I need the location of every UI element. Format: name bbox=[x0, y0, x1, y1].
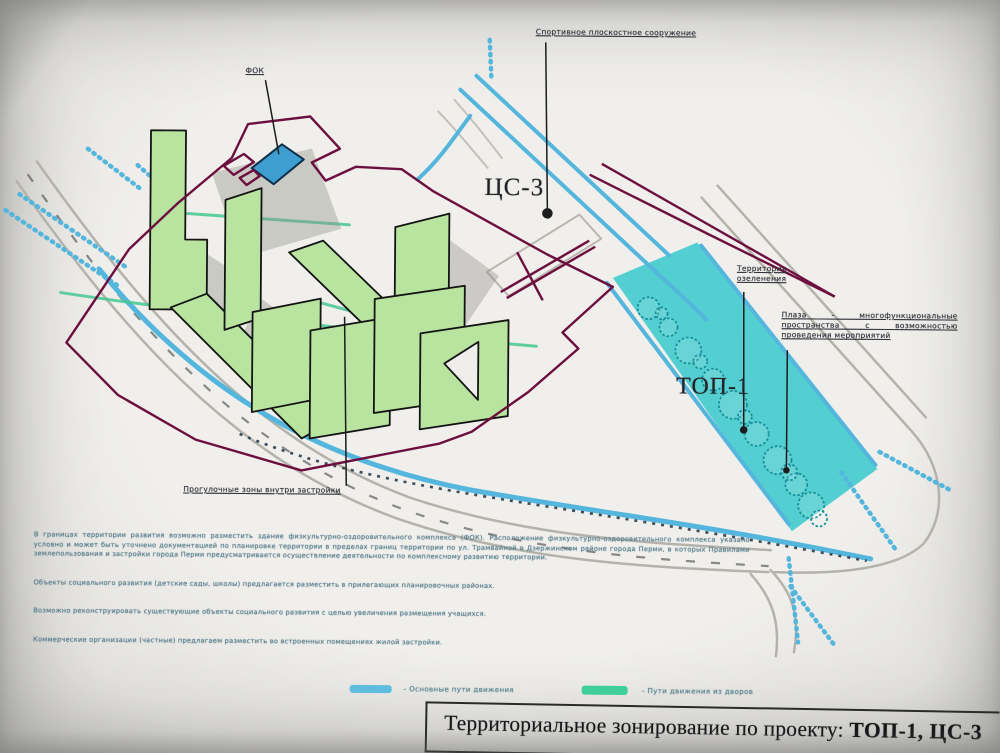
main-paths-legend-label: - Основные пути движения bbox=[404, 685, 514, 694]
zoning-map: ФОК Спортивное плоскостное сооружение ЦС… bbox=[0, 0, 1000, 753]
note-paragraph: Объекты социального развития (детские са… bbox=[33, 578, 749, 593]
zone-top1-label: ТОП-1 bbox=[676, 373, 750, 401]
sheet-title: Территориальное зонирование по проекту: … bbox=[444, 711, 999, 746]
fok-label: ФОК bbox=[245, 66, 264, 76]
notes-section: В границах территории развития возможно … bbox=[33, 530, 750, 650]
sheet-title-text: Территориальное зонирование по проекту: bbox=[444, 711, 850, 742]
note-paragraph: Возможно реконструировать существующие о… bbox=[33, 606, 749, 621]
title-block: Территориальное зонирование по проекту: … bbox=[425, 701, 1000, 753]
greenery-label: Территория озеленения bbox=[737, 264, 801, 285]
walking-zones-label: Прогулочные зоны внутри застройки bbox=[183, 485, 341, 496]
zone-cs3-label: ЦС-3 bbox=[484, 174, 544, 202]
main-paths-swatch-icon bbox=[350, 684, 392, 692]
yard-paths-swatch-icon bbox=[582, 686, 628, 695]
sheet-title-zones: ТОП-1, ЦС-3 bbox=[849, 718, 982, 744]
yard-paths-legend-label: - Пути движения из дворов bbox=[642, 687, 753, 696]
sport-facility-label: Спортивное плоскостное сооружение bbox=[536, 27, 696, 38]
plaza-label: Плаза - многофункциональные пространства… bbox=[781, 310, 957, 342]
photographed-plan-sheet: ФОК Спортивное плоскостное сооружение ЦС… bbox=[0, 0, 1000, 753]
note-paragraph: В границах территории развития возможно … bbox=[34, 530, 750, 564]
